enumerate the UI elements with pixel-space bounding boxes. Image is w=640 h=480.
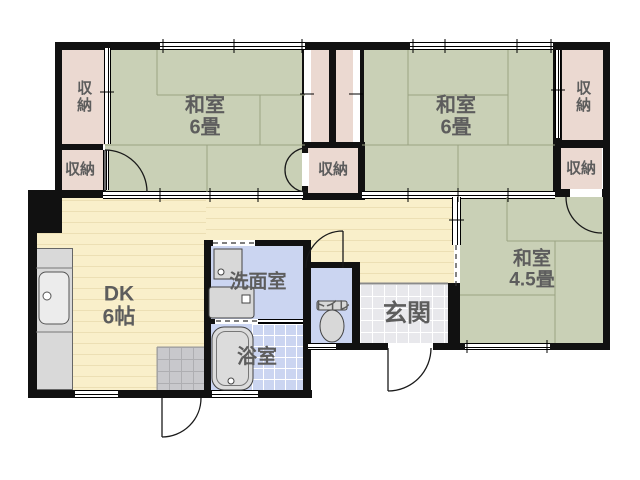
kitchen-counter: [36, 248, 73, 390]
wall: [358, 343, 388, 350]
wall: [550, 343, 610, 350]
closet-bottom-right-door-gap: [570, 189, 602, 197]
window-washitsu-small: [465, 343, 550, 350]
dk-doma-tile: [157, 347, 204, 390]
washitsu-left-label: 和室6畳: [185, 95, 225, 138]
wall: [553, 189, 570, 197]
closet-center-left: [311, 50, 329, 142]
closet-slider-right: [353, 50, 360, 142]
wall-entrance-right: [448, 283, 460, 345]
wall-bottom-left: [28, 390, 312, 398]
dk-label: DK6帖: [103, 283, 136, 328]
sliding-doors-washitsu-left: [103, 191, 303, 199]
bathroom-label: 浴室: [237, 347, 277, 369]
wall-toilet-right: [352, 262, 360, 350]
closet-bottom-right-label: 収納: [566, 161, 596, 177]
window-top-right: [410, 42, 553, 50]
sliding-door-hall-washitsu-small: [452, 197, 461, 245]
pillar: [28, 190, 62, 233]
washroom-opening: [213, 240, 255, 246]
wall: [553, 140, 610, 148]
window-bathroom: [212, 390, 258, 398]
closet-bottom-left-label: 収納: [65, 162, 95, 178]
wall: [602, 189, 610, 197]
closet-top-right-label: 収納: [574, 80, 590, 114]
bath-door: [258, 319, 303, 324]
washitsu-small-label: 和室4.5畳: [509, 249, 554, 290]
wall-left-upper: [55, 50, 62, 197]
closet-slider-top-right: [555, 50, 561, 138]
window-toilet: [308, 343, 336, 350]
wall: [55, 144, 103, 150]
toilet-label: トイレ: [314, 300, 350, 313]
closet-center-door-gap: [302, 153, 309, 186]
closet-slider-top-left: [104, 48, 111, 144]
closet-slider-bottom-left: [103, 150, 109, 190]
window-top-left: [160, 42, 305, 50]
entrance-label: 玄関: [383, 301, 431, 327]
closet-slider-left: [304, 50, 311, 142]
closet-center-right: [336, 50, 353, 142]
washroom-label: 洗面室: [229, 273, 286, 294]
bath-divider-dashed-gap: [215, 319, 258, 324]
window-kitchen: [75, 390, 118, 398]
washitsu-right-label: 和室6畳: [436, 95, 476, 138]
floor-plan: 収納 収納 収納 収納 収納 和室6畳 和室6畳 和室4.5畳 DK6帖 洗面室…: [0, 0, 640, 480]
closet-top-left-label: 収納: [75, 80, 91, 114]
closet-center-label: 収納: [318, 162, 348, 178]
